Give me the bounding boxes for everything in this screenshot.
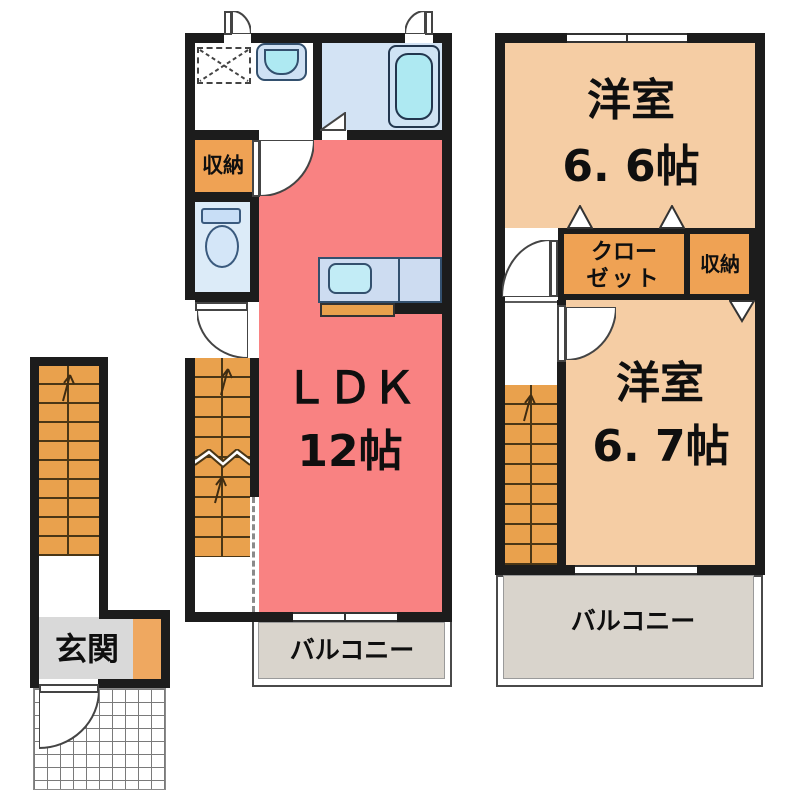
bedroom-a-label: 洋室 — [587, 79, 675, 123]
door-leaf — [252, 140, 260, 197]
bifold-door-icon — [659, 205, 685, 229]
stair-direction-arrow-icon — [208, 472, 230, 506]
balcony-1f-label: バルコニー — [290, 638, 415, 663]
floor-area — [195, 557, 250, 612]
toilet-tank-icon — [201, 208, 241, 224]
wall — [395, 303, 442, 314]
wall — [250, 358, 259, 497]
door-leaf — [224, 11, 232, 35]
ldk-size-label: 12帖 — [297, 430, 402, 474]
ldk-label: ＬＤＫ — [284, 367, 416, 411]
wall — [250, 202, 259, 302]
storage-1f-label: 収納 — [202, 156, 244, 177]
door-swing-icon — [566, 307, 616, 360]
door-leaf — [425, 11, 433, 35]
door-swing-icon — [260, 140, 314, 196]
door-leaf — [195, 302, 248, 311]
wall — [495, 33, 505, 575]
balcony-2f-label: バルコニー — [571, 609, 696, 634]
entrance-door-leaf — [39, 684, 99, 693]
wall — [99, 610, 169, 619]
genkan-label: 玄関 — [55, 633, 119, 665]
bedroom-b-label: 洋室 — [616, 362, 704, 406]
stair-break-line-icon — [195, 449, 250, 473]
storage-2f-label: 収納 — [700, 254, 740, 274]
wall — [347, 130, 442, 140]
door-leaf — [550, 240, 558, 297]
bifold-door-icon — [567, 205, 593, 229]
kitchen-counter-divider — [398, 257, 400, 303]
stair-direction-arrow-icon — [56, 370, 78, 404]
wall — [195, 292, 259, 302]
wall — [161, 610, 170, 688]
entrance-door-swing-icon — [39, 690, 99, 750]
bedroom-a — [505, 43, 755, 228]
wall — [442, 33, 452, 622]
bedroom-a-size-label: 6. 6帖 — [562, 145, 699, 189]
wall — [30, 357, 39, 688]
bifold-door-icon — [729, 300, 755, 323]
sliding-window — [293, 612, 397, 622]
door-swing-icon — [197, 310, 248, 358]
closet-label-line2: ゼット — [586, 269, 661, 291]
sliding-window — [575, 565, 697, 575]
wall — [195, 130, 259, 140]
wall — [30, 357, 108, 366]
floor-plan-canvas: 玄関 — [0, 0, 800, 791]
stair-landing-edge — [505, 301, 557, 303]
door-swing-icon — [405, 11, 425, 34]
bedroom-b-size-label: 6. 7帖 — [592, 425, 729, 469]
closet-label-line1: クロー — [591, 242, 657, 264]
kitchen-sink-icon — [328, 263, 372, 294]
wall — [755, 33, 765, 575]
washing-machine-pan-icon — [197, 47, 251, 84]
door-swing-icon — [232, 11, 251, 34]
sliding-window — [567, 33, 687, 43]
stair-direction-arrow-icon — [517, 390, 539, 424]
door-leaf — [557, 305, 566, 362]
shoe-cabinet — [133, 617, 161, 679]
kitchen-cabinet — [320, 303, 395, 317]
stair-open-railing — [252, 497, 255, 612]
door-opening — [185, 300, 195, 358]
wall — [195, 192, 259, 202]
toilet-bowl-icon — [205, 225, 239, 268]
wall — [99, 357, 108, 610]
bathtub-inner-icon — [395, 53, 433, 120]
stair-direction-arrow-icon — [214, 364, 236, 398]
door-swing-icon — [502, 240, 550, 297]
bath-folding-door-icon — [320, 112, 347, 132]
